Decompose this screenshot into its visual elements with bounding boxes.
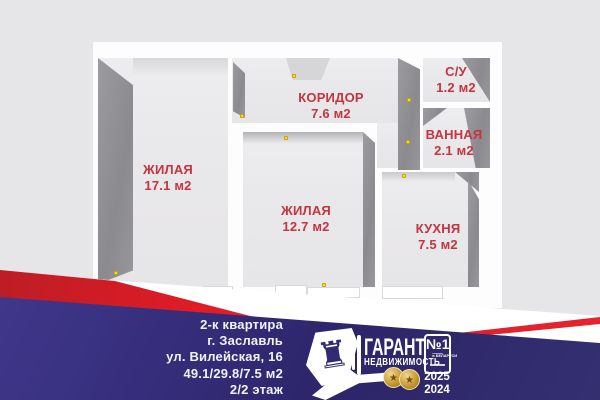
door-handle-icon — [407, 98, 411, 102]
wall-shading — [243, 132, 363, 144]
room-name: ЖИЛАЯ — [281, 203, 331, 218]
wall-shading — [133, 58, 228, 76]
badge-subtext: в БЕЛАРУСИ — [432, 353, 442, 358]
number-one-badge: №1 в БЕЛАРУСИ — [424, 334, 451, 374]
door-handle-icon — [292, 74, 296, 78]
door-handle-icon — [322, 283, 326, 287]
room-name: КУХНЯ — [416, 221, 461, 236]
wall-shading — [363, 132, 375, 287]
room-area: 7.5 м2 — [418, 237, 458, 252]
room-name: КОРИДОР — [298, 90, 364, 105]
door-handle-icon — [240, 114, 244, 118]
medal-icon: ★ — [399, 369, 420, 390]
room-area: 1.2 м2 — [436, 80, 476, 95]
real-estate-listing-image: ЖИЛАЯ 17.1 м2 КОРИДОР 7.6 м2 С/У 1.2 м2 … — [0, 0, 600, 400]
wall-shading — [98, 58, 133, 284]
room-label-kitchen: КУХНЯ 7.5 м2 — [416, 221, 461, 253]
listing-line-floor: 2/2 этаж — [43, 382, 283, 398]
room-area: 12.7 м2 — [282, 219, 329, 234]
window — [382, 286, 443, 299]
listing-line-street: ул. Вилейская, 16 — [43, 349, 283, 365]
room-name: С/У — [445, 64, 467, 79]
room-name: ВАННАЯ — [426, 127, 483, 142]
wall-shading — [398, 58, 420, 170]
award-year: 2024 — [422, 384, 452, 396]
listing-line-city: г. Заславль — [43, 333, 283, 349]
room-label-bathroom: ВАННАЯ 2.1 м2 — [426, 127, 483, 159]
logo-bar — [357, 335, 361, 375]
badge-line — [430, 364, 445, 366]
room-label-living-12: ЖИЛАЯ 12.7 м2 — [281, 203, 331, 235]
listing-line-type: 2-к квартира — [43, 317, 283, 333]
listing-line-areas: 49.1/29.8/7.5 м2 — [43, 366, 283, 382]
door-handle-icon — [114, 271, 118, 275]
room-label-wc: С/У 1.2 м2 — [436, 64, 476, 96]
room-area: 2.1 м2 — [434, 143, 474, 158]
room-corridor-arm — [377, 123, 398, 168]
room-area: 17.1 м2 — [144, 178, 191, 193]
logo-bar — [352, 340, 355, 370]
listing-info: 2-к квартира г. Заславль ул. Вилейская, … — [43, 317, 283, 398]
room-name: ЖИЛАЯ — [143, 162, 193, 177]
room-label-corridor: КОРИДОР 7.6 м2 — [298, 90, 364, 122]
room-area: 7.6 м2 — [311, 106, 351, 121]
badge-number: №1 — [426, 336, 449, 353]
door-handle-icon — [284, 136, 288, 140]
room-label-living-17: ЖИЛАЯ 17.1 м2 — [143, 162, 193, 194]
door-handle-icon — [406, 140, 410, 144]
wall-shading — [382, 172, 455, 182]
door-handle-icon — [402, 174, 406, 178]
award-year: 2025 — [422, 371, 452, 383]
